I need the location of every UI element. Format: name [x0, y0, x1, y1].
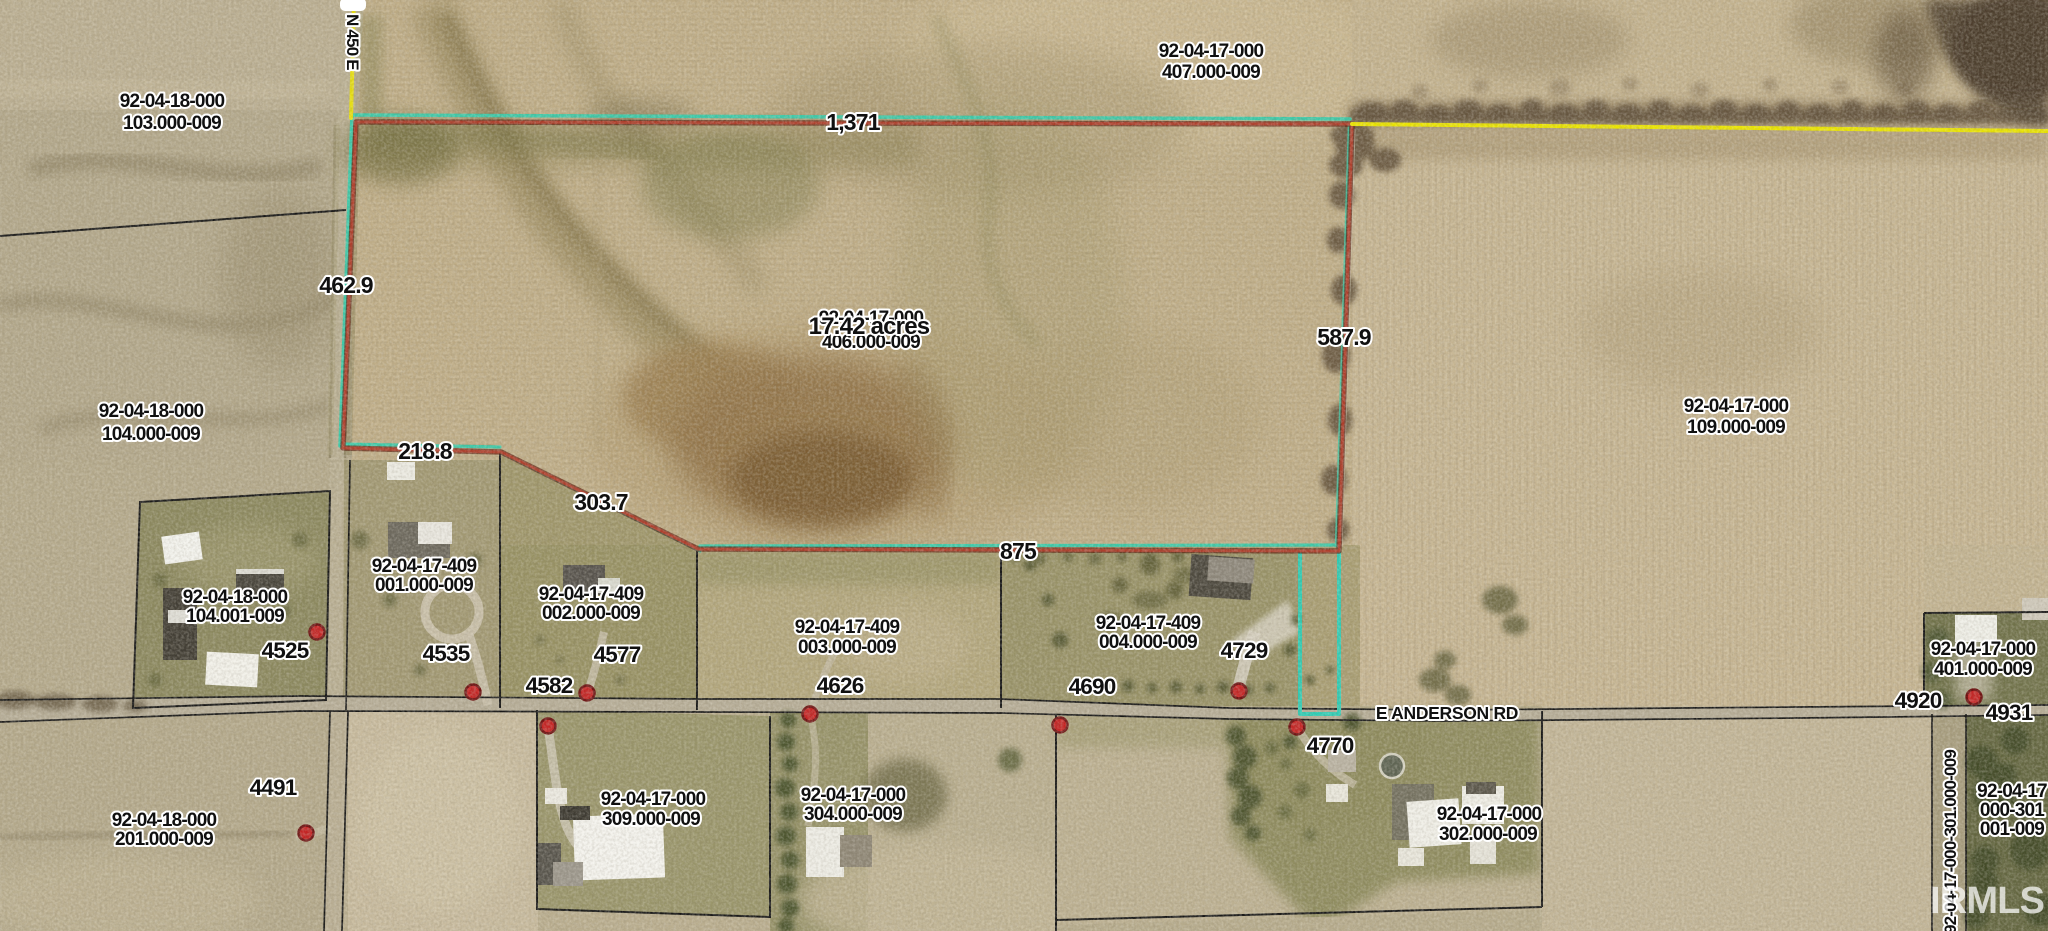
- svg-text:201.000-009: 201.000-009: [115, 829, 213, 850]
- svg-text:000-301: 000-301: [1980, 800, 2045, 821]
- svg-text:92-04-17-000: 92-04-17-000: [1931, 639, 2036, 660]
- svg-text:4582: 4582: [526, 673, 573, 698]
- svg-text:92-04-17-409: 92-04-17-409: [1096, 613, 1201, 634]
- svg-text:4577: 4577: [594, 642, 641, 667]
- svg-text:N 450 E: N 450 E: [343, 14, 362, 70]
- svg-text:92-04-17-000: 92-04-17-000: [1159, 41, 1264, 62]
- svg-text:E ANDERSON RD: E ANDERSON RD: [1376, 703, 1518, 723]
- svg-text:92-04-17-409: 92-04-17-409: [372, 556, 477, 577]
- svg-text:304.000-009: 304.000-009: [804, 804, 902, 825]
- svg-text:1,371: 1,371: [826, 109, 881, 135]
- svg-text:302.000-009: 302.000-009: [1439, 824, 1537, 845]
- svg-text:4920: 4920: [1895, 688, 1942, 713]
- svg-text:407.000-009: 407.000-009: [1162, 62, 1260, 83]
- svg-text:401.000-009: 401.000-009: [1934, 659, 2032, 680]
- svg-text:104.000-009: 104.000-009: [102, 424, 200, 445]
- svg-text:92-04-17-409: 92-04-17-409: [795, 617, 900, 638]
- svg-text:92-04-18-000: 92-04-18-000: [183, 587, 288, 608]
- svg-text:103.000-009: 103.000-009: [123, 113, 221, 134]
- svg-text:4535: 4535: [423, 641, 470, 666]
- svg-text:4770: 4770: [1307, 733, 1354, 758]
- svg-text:92-04-17-000: 92-04-17-000: [1437, 804, 1542, 825]
- svg-text:002.000-009: 002.000-009: [542, 603, 640, 624]
- svg-text:IRMLS: IRMLS: [1930, 880, 2044, 922]
- svg-text:4525: 4525: [262, 638, 309, 663]
- svg-text:4626: 4626: [817, 673, 864, 698]
- svg-text:92-04-17-000: 92-04-17-000: [1684, 396, 1789, 417]
- svg-text:218.8: 218.8: [398, 438, 453, 464]
- svg-text:92-04-18-000: 92-04-18-000: [120, 91, 225, 112]
- svg-text:001-009: 001-009: [1980, 819, 2044, 840]
- svg-text:587.9: 587.9: [1317, 324, 1371, 350]
- svg-text:001.000-009: 001.000-009: [375, 575, 473, 596]
- svg-text:4729: 4729: [1221, 638, 1268, 663]
- svg-text:004.000-009: 004.000-009: [1099, 632, 1197, 653]
- svg-text:462.9: 462.9: [319, 272, 373, 298]
- svg-text:104.001-009: 104.001-009: [186, 606, 284, 627]
- svg-text:92-04-17-000: 92-04-17-000: [801, 785, 906, 806]
- svg-text:92-04-17-409: 92-04-17-409: [539, 584, 644, 605]
- svg-text:4491: 4491: [250, 775, 297, 800]
- svg-text:875: 875: [1000, 538, 1037, 564]
- svg-text:4931: 4931: [1986, 700, 2033, 725]
- svg-text:109.000-009: 109.000-009: [1687, 417, 1785, 438]
- svg-text:17.42 acres: 17.42 acres: [809, 313, 930, 340]
- svg-text:003.000-009: 003.000-009: [798, 637, 896, 658]
- svg-text:4690: 4690: [1069, 674, 1116, 699]
- svg-text:309.000-009: 309.000-009: [602, 809, 700, 830]
- svg-text:92-04-18-000: 92-04-18-000: [99, 401, 204, 422]
- svg-text:92-04-18-000: 92-04-18-000: [112, 810, 217, 831]
- svg-text:92-04-17: 92-04-17: [1977, 781, 2047, 802]
- svg-text:303.7: 303.7: [574, 489, 628, 515]
- svg-text:92-04-17-000: 92-04-17-000: [601, 789, 706, 810]
